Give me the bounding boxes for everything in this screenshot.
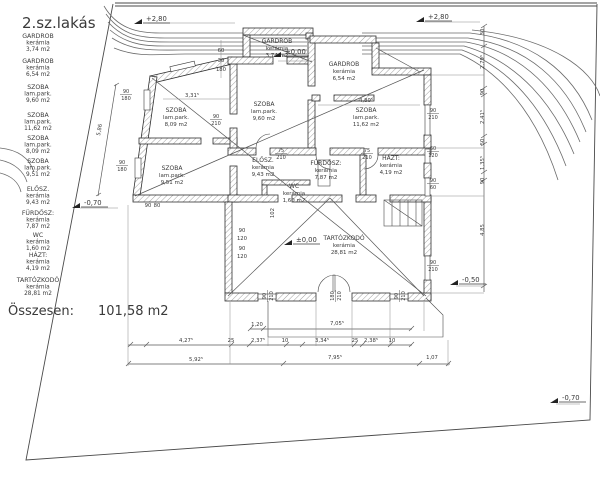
level-marker-arrow-icon <box>134 19 142 24</box>
room-finish-label: kerámia <box>252 164 274 171</box>
level-marker-arrow-icon <box>72 203 80 208</box>
legend-item-name: TARTÓZKODÓ <box>16 275 60 284</box>
level-marker-text: -0,70 <box>562 394 580 402</box>
dim-label: 60 <box>218 48 225 54</box>
dim-label: 30 <box>480 28 486 35</box>
window-size-bottom: 210 <box>362 155 372 161</box>
window-size-label: 90210 <box>262 290 275 302</box>
legend-item-finish: lam.park. <box>24 120 52 126</box>
level-marker-text: +2,80 <box>428 13 449 21</box>
room-finish-label: kerámia <box>380 162 402 169</box>
window-size-top: 75 <box>278 148 284 154</box>
window-size-bottom: 210 <box>211 121 221 127</box>
window-size-bottom: 120 <box>428 153 438 159</box>
legend-item-name: HÁZT: <box>29 250 47 259</box>
room-area-label: 6,54 m2 <box>333 76 356 82</box>
legend-item-finish: kerámia <box>26 259 50 266</box>
legend-item-name: SZOBA <box>27 135 49 142</box>
dim-label: 25 <box>228 338 235 344</box>
window-size-bottom: 210 <box>337 291 343 301</box>
dim-label: 1,20 <box>251 322 263 328</box>
level-marker-arrow-icon <box>416 17 424 22</box>
room-name-label: GARDROB <box>262 38 293 45</box>
page-title: 2.sz.lakás <box>22 14 96 32</box>
legend-item-finish: lam.park. <box>24 92 52 98</box>
window-size-top: 90 <box>430 108 436 114</box>
room-name-label: ELŐSZ. <box>252 157 274 164</box>
legend-item-area: 9,60 m2 <box>26 98 50 104</box>
window-size-top: 90 <box>123 89 129 95</box>
dim-label: 102 <box>270 208 276 218</box>
legend-item-finish: kerámia <box>26 217 50 224</box>
window-size-bottom: 210 <box>276 155 286 161</box>
level-marker-text: +2,80 <box>146 15 167 23</box>
legend-item-finish: lam.park. <box>24 166 52 172</box>
dim-label: 10 <box>282 338 289 344</box>
window-size-label: 90180 <box>120 89 132 102</box>
dim-label: 10 <box>389 338 396 344</box>
legend-item-name: FÜRDŐSZ: <box>22 208 54 217</box>
legend-item-area: 4,19 m2 <box>26 266 50 272</box>
dim-label: 90 <box>239 228 246 234</box>
dim-label: 4,27⁵ <box>179 337 193 344</box>
legend-item-area: 6,54 m2 <box>26 72 50 78</box>
room-area-label: 11,62 m2 <box>353 122 379 128</box>
legend-item-area: 8,09 m2 <box>26 149 50 155</box>
level-marker-text: -0,70 <box>84 199 102 207</box>
legend-item-name: SZOBA <box>27 112 49 119</box>
room-area-label: 9,60 m2 <box>253 116 276 122</box>
room-finish-label: kerámia <box>283 190 305 197</box>
legend-item-finish: kerámia <box>26 40 50 47</box>
window-size-top: 90 <box>262 293 268 299</box>
window-size-bottom: 210 <box>428 115 438 121</box>
dim-label: 25 <box>352 338 359 344</box>
room-finish-label: kerámia <box>333 68 355 75</box>
floor-plan-drawing: 2.sz.lakás Összesen: 101,58 m2 GARDROBke… <box>0 0 600 478</box>
window-size-top: 90 <box>430 178 436 184</box>
room-name-label: GARDROB <box>329 61 360 68</box>
window-size-bottom: 60 <box>430 185 436 191</box>
legend-item-name: GARDROB <box>22 58 54 65</box>
legend-item-finish: kerámia <box>26 284 50 291</box>
legend-item-name: SZOBA <box>27 158 49 165</box>
dim-label: 90 <box>145 203 152 209</box>
dim-label: 180 <box>216 67 227 73</box>
dim-label: 1,35⁵ <box>479 156 486 170</box>
legend-item-area: 9,43 m2 <box>26 200 50 206</box>
room-area-label: 7,87 m2 <box>315 175 338 181</box>
room-name-label: SZOBA <box>162 165 184 172</box>
window-size-label: 180210 <box>330 290 343 302</box>
room-area-label: 4,19 m2 <box>380 170 403 176</box>
dim-label: 50 <box>480 138 486 145</box>
window-size-top: 75 <box>364 148 370 154</box>
legend-item-finish: kerámia <box>26 239 50 246</box>
dim-label: 3,34⁵ <box>315 337 329 344</box>
window-size-top: 180 <box>330 291 336 301</box>
level-marker-text: ±0,00 <box>296 236 317 244</box>
legend-item-area: 28,81 m2 <box>24 291 52 297</box>
legend-item-finish: lam.park. <box>24 143 52 149</box>
legend-item-name: GARDROB <box>22 33 54 40</box>
level-marker-arrow-icon <box>550 398 558 403</box>
legend-item-name: SZOBA <box>27 84 49 91</box>
dim-label: 2,79⁵ <box>479 55 486 69</box>
room-finish-label: kerámia <box>333 242 355 249</box>
room-name-label: FÜRDŐSZ: <box>310 160 341 167</box>
room-name-label: TARTÓZKODÓ <box>322 235 364 242</box>
room-area-label: 1,60 m2 <box>283 198 306 204</box>
dim-label: 2,37⁵ <box>251 337 265 344</box>
room-area-label: 9,43 m2 <box>252 172 275 178</box>
level-marker-text: ±0,00 <box>285 48 306 56</box>
room-finish-label: lam.park. <box>353 115 379 121</box>
floor-plan-page: 2.sz.lakás Összesen: 101,58 m2 GARDROBke… <box>0 0 600 478</box>
dim-label: 7,95⁵ <box>328 354 342 361</box>
window-size-top: 90 <box>430 260 436 266</box>
dim-label: 80 <box>154 203 161 209</box>
legend-item-area: 7,87 m2 <box>26 224 50 230</box>
legend-items: GARDROBkerámia3,74 m2GARDROBkerámia6,54 … <box>16 33 60 297</box>
window-size-top: 90 <box>213 114 219 120</box>
window-size-label: 90180 <box>116 160 128 173</box>
window-size-label: 90210 <box>394 290 407 302</box>
room-area-label: 8,09 m2 <box>165 122 188 128</box>
legend-item-finish: kerámia <box>26 193 50 200</box>
dim-label: 3,31⁵ <box>185 92 199 99</box>
window-size-top: 60 <box>430 146 436 152</box>
window-size-top: 90 <box>394 293 400 299</box>
dim-label: 7,05⁵ <box>330 320 344 327</box>
dim-label: 120 <box>237 236 248 242</box>
legend-item-finish: kerámia <box>26 65 50 72</box>
legend-item-name: WC <box>33 232 43 239</box>
room-finish-label: lam.park. <box>251 109 277 115</box>
window-size-bottom: 210 <box>401 291 407 301</box>
dim-label: 30 <box>218 58 225 64</box>
window-size-top: 90 <box>119 160 125 166</box>
total-label: Összesen: <box>8 302 74 319</box>
plan-annotations: GARDROBkerámia3,74 m2GARDROBkerámia6,54 … <box>72 13 586 403</box>
dim-label: 5,92⁵ <box>189 356 203 363</box>
room-name-label: WC <box>289 183 299 190</box>
dim-label: 2,41⁵ <box>479 110 486 124</box>
legend-item-area: 3,74 m2 <box>26 47 50 53</box>
dim-label: 90 <box>480 177 486 184</box>
room-area-label: 28,81 m2 <box>331 250 357 256</box>
window-size-bottom: 210 <box>428 267 438 273</box>
dim-label: 5,86 <box>96 123 104 136</box>
dim-label: 4,80⁵ <box>359 97 373 104</box>
dim-label: 90 <box>239 246 246 252</box>
legend-item-name: ELŐSZ. <box>27 184 49 193</box>
dim-label: 2,38⁵ <box>364 337 378 344</box>
room-area-label: 9,51 m2 <box>161 180 184 186</box>
room-name-label: SZOBA <box>254 101 276 108</box>
dim-label: 4,85 <box>480 224 486 236</box>
window-size-bottom: 180 <box>117 167 127 173</box>
window-size-bottom: 210 <box>269 291 275 301</box>
room-name-label: SZOBA <box>166 107 188 114</box>
dim-label: 120 <box>237 254 248 260</box>
window-size-bottom: 180 <box>121 96 131 102</box>
total-value: 101,58 m2 <box>98 304 169 319</box>
room-finish-label: kerámia <box>315 167 337 174</box>
legend-item-area: 9,51 m2 <box>26 172 50 178</box>
room-name-label: SZOBA <box>356 107 378 114</box>
window-size-label: 90210 <box>210 114 222 127</box>
room-finish-label: lam.park. <box>163 115 189 121</box>
level-marker-arrow-icon <box>450 280 458 285</box>
room-name-label: HÁZT: <box>382 155 400 162</box>
level-marker-text: -0,50 <box>462 276 480 284</box>
legend-item-area: 11,62 m2 <box>24 126 52 132</box>
room-finish-label: lam.park. <box>159 173 185 179</box>
dim-label: 1,07 <box>426 355 438 361</box>
dim-label: 90 <box>480 88 486 95</box>
